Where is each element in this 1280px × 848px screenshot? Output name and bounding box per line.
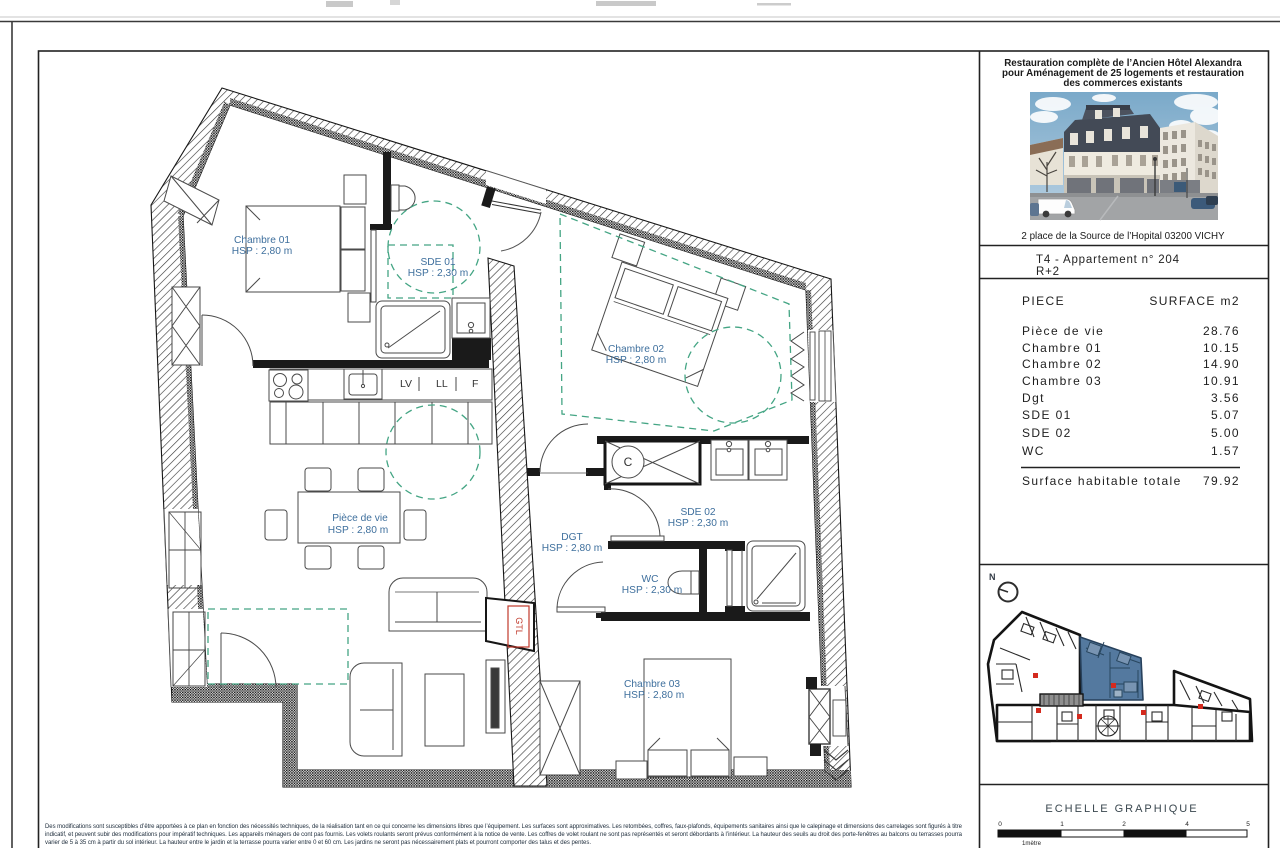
svg-text:HSP : 2,80 m: HSP : 2,80 m: [232, 246, 292, 257]
svg-text:14.90: 14.90: [1203, 357, 1240, 371]
svg-text:28.76: 28.76: [1203, 324, 1240, 338]
svg-text:0: 0: [998, 821, 1002, 828]
svg-text:HSP : 2,30 m: HSP : 2,30 m: [668, 518, 728, 529]
svg-text:Chambre 03: Chambre 03: [1022, 374, 1102, 388]
svg-text:5.00: 5.00: [1211, 426, 1240, 440]
svg-text:SDE 02: SDE 02: [1022, 426, 1072, 440]
svg-text:1mètre: 1mètre: [1022, 841, 1042, 847]
svg-text:HSP : 2,80 m: HSP : 2,80 m: [624, 690, 684, 701]
svg-text:4: 4: [1185, 821, 1189, 828]
svg-text:Chambre 02: Chambre 02: [1022, 357, 1102, 371]
svg-text:HSP : 2,80 m: HSP : 2,80 m: [328, 525, 388, 536]
svg-text:10.15: 10.15: [1203, 341, 1240, 355]
svg-text:des commerces existants: des commerces existants: [1063, 78, 1183, 89]
svg-text:F: F: [472, 378, 478, 390]
svg-text:10.91: 10.91: [1203, 374, 1240, 388]
svg-text:SDE 02: SDE 02: [680, 507, 715, 518]
svg-text:SDE 01: SDE 01: [1022, 408, 1072, 422]
svg-text:Chambre 01: Chambre 01: [1022, 341, 1102, 355]
svg-text:GTL: GTL: [514, 617, 524, 635]
svg-text:3.56: 3.56: [1211, 391, 1240, 405]
svg-text:Chambre 02: Chambre 02: [608, 344, 664, 355]
svg-text:SURFACE m2: SURFACE m2: [1149, 294, 1240, 308]
svg-text:ECHELLE GRAPHIQUE: ECHELLE GRAPHIQUE: [1045, 803, 1198, 815]
svg-text:C: C: [624, 455, 633, 469]
svg-text:1.57: 1.57: [1211, 444, 1240, 458]
svg-text:2: 2: [1122, 821, 1126, 828]
svg-text:T4 - Appartement n° 204: T4 - Appartement n° 204: [1036, 254, 1180, 266]
svg-text:5: 5: [1246, 821, 1250, 828]
svg-text:Pièce de vie: Pièce de vie: [332, 513, 388, 524]
svg-text:Pièce de vie: Pièce de vie: [1022, 324, 1104, 338]
svg-text:LL: LL: [436, 378, 448, 390]
svg-text:LV: LV: [400, 378, 412, 390]
svg-text:Chambre 03: Chambre 03: [624, 679, 680, 690]
svg-text:DGT: DGT: [561, 532, 583, 543]
svg-text:WC: WC: [1022, 444, 1045, 458]
svg-text:Surface habitable totale: Surface habitable totale: [1022, 474, 1182, 488]
svg-text:HSP : 2,80 m: HSP : 2,80 m: [606, 355, 666, 366]
svg-text:HSP : 2,30 m: HSP : 2,30 m: [622, 585, 682, 596]
svg-text:indicatif, et peuvent subir de: indicatif, et peuvent subir des modifica…: [45, 832, 963, 838]
svg-text:2 place de la Source de l’Hopi: 2 place de la Source de l’Hopital 03200 …: [1021, 231, 1225, 242]
svg-text:R+2: R+2: [1036, 266, 1060, 278]
svg-text:SDE 01: SDE 01: [420, 257, 455, 268]
svg-text:Dgt: Dgt: [1022, 391, 1045, 405]
svg-text:5.07: 5.07: [1211, 408, 1240, 422]
svg-text:HSP : 2,30 m: HSP : 2,30 m: [408, 268, 468, 279]
svg-text:Des modifications sont suscept: Des modifications sont susceptibles d’êt…: [45, 824, 963, 830]
svg-text:N: N: [989, 572, 996, 582]
svg-text:WC: WC: [642, 574, 659, 585]
svg-text:PIECE: PIECE: [1022, 294, 1065, 308]
svg-text:varier de 5 à 35 cm à partir d: varier de 5 à 35 cm à partir du sol inté…: [45, 840, 591, 846]
svg-text:1: 1: [1060, 821, 1064, 828]
svg-text:79.92: 79.92: [1203, 474, 1240, 488]
svg-text:HSP : 2,80 m: HSP : 2,80 m: [542, 543, 602, 554]
svg-text:Chambre 01: Chambre 01: [234, 235, 290, 246]
